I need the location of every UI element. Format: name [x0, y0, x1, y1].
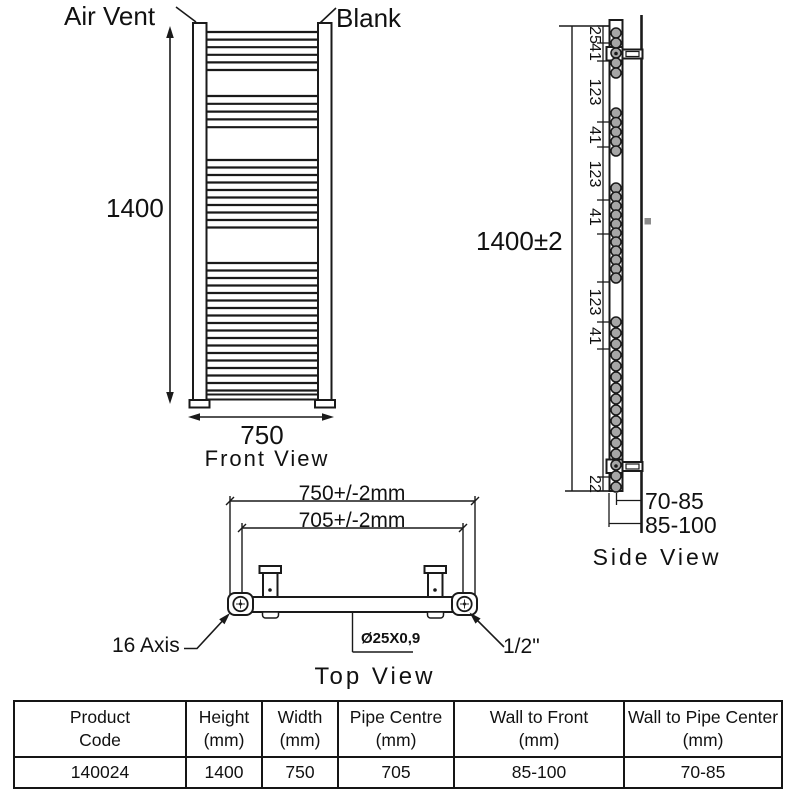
side-top-bracket-pin [614, 52, 618, 56]
air-vent-leader-line [176, 7, 196, 22]
top-left-end-cap [228, 593, 253, 615]
side-spacing-dim-label: 41 [585, 327, 603, 345]
air-vent-label: Air Vent [64, 1, 155, 32]
side-overall-height-label: 1400±2 [476, 226, 563, 257]
top-right-end-cap [452, 593, 477, 615]
side-spacing-dim-label: 41 [585, 126, 603, 144]
side-bottom-bracket-pin [614, 464, 618, 468]
blank-leader-line [320, 8, 336, 23]
side-spacing-dim-label: 123 [585, 160, 603, 187]
front-left-rail [193, 23, 207, 402]
side-spacing-dim-label: 25 [585, 26, 603, 44]
cell-pipe-centre: 705 [338, 757, 454, 788]
header-wall-to-pipe-center: Wall to Pipe Center (mm) [624, 701, 782, 757]
front-right-foot [315, 400, 335, 408]
axis-label: 16 Axis [112, 634, 180, 658]
cell-wall-to-pipe-center: 70-85 [624, 757, 782, 788]
cell-height: 1400 [186, 757, 262, 788]
top-right-bracket [425, 566, 447, 598]
front-left-foot [190, 400, 210, 408]
top-view-caption: Top View [300, 663, 450, 691]
side-view-drawing [559, 15, 651, 533]
front-view-drawing [166, 7, 336, 421]
front-view-caption: Front View [182, 446, 352, 472]
pipe-spec-label: Ø25X0,9 [361, 630, 420, 647]
side-view-caption: Side View [582, 544, 732, 571]
front-height-arrow-up [166, 26, 174, 38]
top-pipe-centre-label: 705+/-2mm [282, 509, 422, 533]
connection-size-label: 1/2" [503, 635, 540, 659]
header-wall-to-front: Wall to Front (mm) [454, 701, 624, 757]
radiator-spec-sheet: Air Vent Blank 1400 750 Front View 1400±… [0, 0, 800, 800]
header-height: Height (mm) [186, 701, 262, 757]
front-tube-bars [207, 32, 319, 391]
header-width: Width (mm) [262, 701, 338, 757]
cell-wall-to-front: 85-100 [454, 757, 624, 788]
front-height-arrow-down [166, 392, 174, 404]
front-right-rail [318, 23, 332, 402]
side-spacing-dim-label: 41 [585, 43, 603, 61]
side-spacing-dim-label: 22 [585, 475, 603, 493]
cell-product-code: 140024 [14, 757, 186, 788]
top-left-bracket [260, 566, 282, 598]
spec-table-header-row: Product Code Height (mm) Width (mm) Pipe… [14, 701, 782, 757]
blank-label: Blank [336, 3, 401, 34]
side-wall-mark [645, 218, 652, 225]
top-crossbar [233, 597, 472, 612]
side-spacing-dim-label: 123 [585, 289, 603, 316]
top-right-pipe-stub [428, 612, 444, 618]
header-product-code: Product Code [14, 701, 186, 757]
wall-to-front-label: 85-100 [645, 512, 717, 539]
spec-table-data-row: 140024 1400 750 705 85-100 70-85 [14, 757, 782, 788]
front-height-dim-label: 1400 [106, 193, 164, 224]
top-left-pipe-stub [263, 612, 279, 618]
cell-width: 750 [262, 757, 338, 788]
top-outer-width-label: 750+/-2mm [282, 482, 422, 506]
header-pipe-centre: Pipe Centre (mm) [338, 701, 454, 757]
side-spacing-dim-label: 41 [585, 208, 603, 226]
side-spacing-dim-label: 123 [585, 78, 603, 105]
wall-to-pipe-label: 70-85 [645, 488, 704, 515]
spec-table: Product Code Height (mm) Width (mm) Pipe… [13, 700, 783, 789]
